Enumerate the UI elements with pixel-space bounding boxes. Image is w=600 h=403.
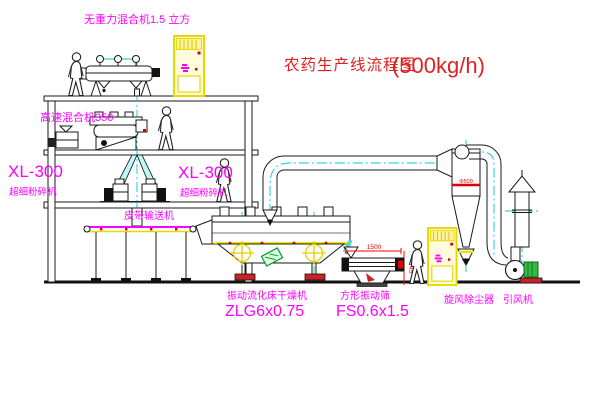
label-left-mill-model: XL-300 [8,162,63,181]
label-fan: 引风机 [503,293,533,306]
cyclone-dimension: Φ500 [459,179,473,185]
person-figure [68,53,83,96]
gravity-mixer-machine [80,56,160,97]
vibrating-sieve: 1500 745 [342,240,414,287]
valve-icons [97,56,140,67]
page-title-capacity: (500kg/h) [392,53,485,78]
control-cabinet-right [428,228,457,285]
person-figure [409,241,424,284]
control-cabinet-top [174,36,204,96]
label-dryer-name: 振动流化床干燥机 [227,289,307,302]
label-gravity-mixer: 无重力混合机1.5 立方 [84,12,190,26]
label-dryer-model: ZLG6x0.75 [225,303,304,320]
induced-draft-fan [506,247,543,283]
label-belt-conveyor: 皮带输送机 [124,209,174,222]
process-flow-diagram-canvas: Φ500 1500 745 [0,0,600,403]
label-sieve-model: FS0.6x1.5 [336,303,409,320]
label-left-mill-name: 超细粉碎机 [9,186,57,198]
label-center-mill-model: XL-300 [178,163,233,182]
diagram-svg: Φ500 1500 745 [0,0,600,403]
person-figure [158,107,173,150]
label-sieve-name: 方形振动筛 [340,289,390,302]
exhaust-stack [509,170,535,247]
label-center-mill-name: 超细粉碎机 [180,187,228,199]
sieve-length-dimension: 1500 [367,244,382,251]
label-high-speed-mixer: 高速混合机350 [40,110,113,124]
label-cyclone: 旋风除尘器 [444,293,494,306]
pulverizer-pair [100,155,170,202]
